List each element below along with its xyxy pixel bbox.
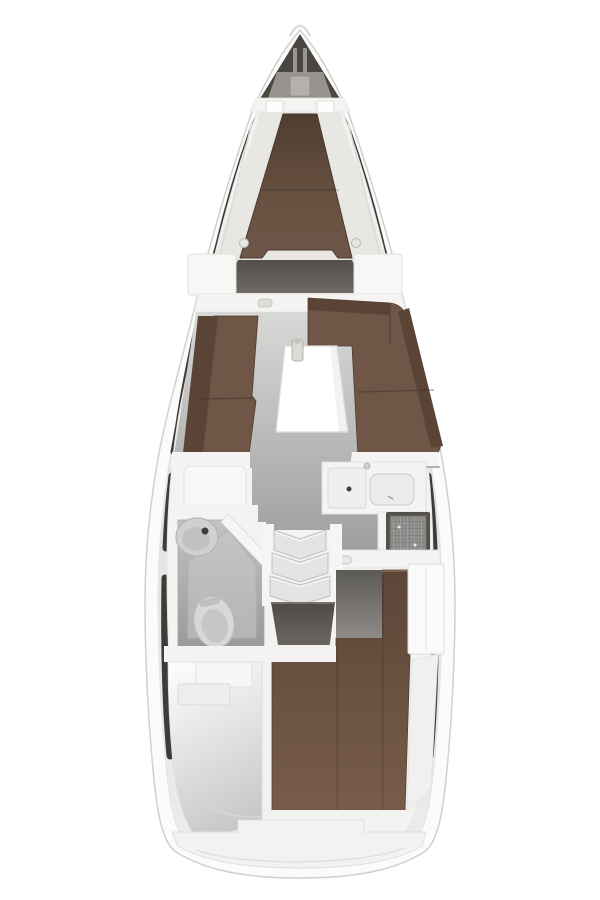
stowage-step-lower: [178, 684, 230, 705]
bow-post-starboard: [317, 101, 334, 113]
stowage-step-upper: [196, 662, 252, 687]
head-faucet-icon: [202, 528, 209, 535]
forward-locker-starboard: [354, 254, 402, 295]
boat-floor-plan: [0, 0, 600, 900]
berth-aft-lip: [270, 810, 408, 820]
aft-cabin-entry-floor: [336, 570, 382, 638]
stove-sparkle: [398, 526, 401, 529]
galley-faucet-icon: [364, 463, 370, 469]
galley-sink: [370, 474, 414, 505]
head-forward-wall: [170, 505, 258, 522]
forward-locker-port: [188, 254, 236, 295]
forward-bulkhead: [250, 98, 350, 112]
port-settee-seam: [201, 398, 253, 399]
forward-cabin-floor: [224, 260, 366, 293]
head-aft-wall: [164, 646, 336, 662]
worktop-drain-icon: [347, 487, 352, 492]
bow-post-port: [266, 101, 283, 113]
stove-sparkle-2: [414, 544, 417, 547]
companionway-landing: [271, 602, 335, 651]
bottle-on-table-icon: [292, 338, 303, 361]
reading-light-starboard: [352, 239, 361, 248]
reading-light-port: [240, 239, 249, 248]
boat-floor-plan-svg: [0, 0, 600, 900]
bulkhead-door-handle: [258, 299, 272, 307]
